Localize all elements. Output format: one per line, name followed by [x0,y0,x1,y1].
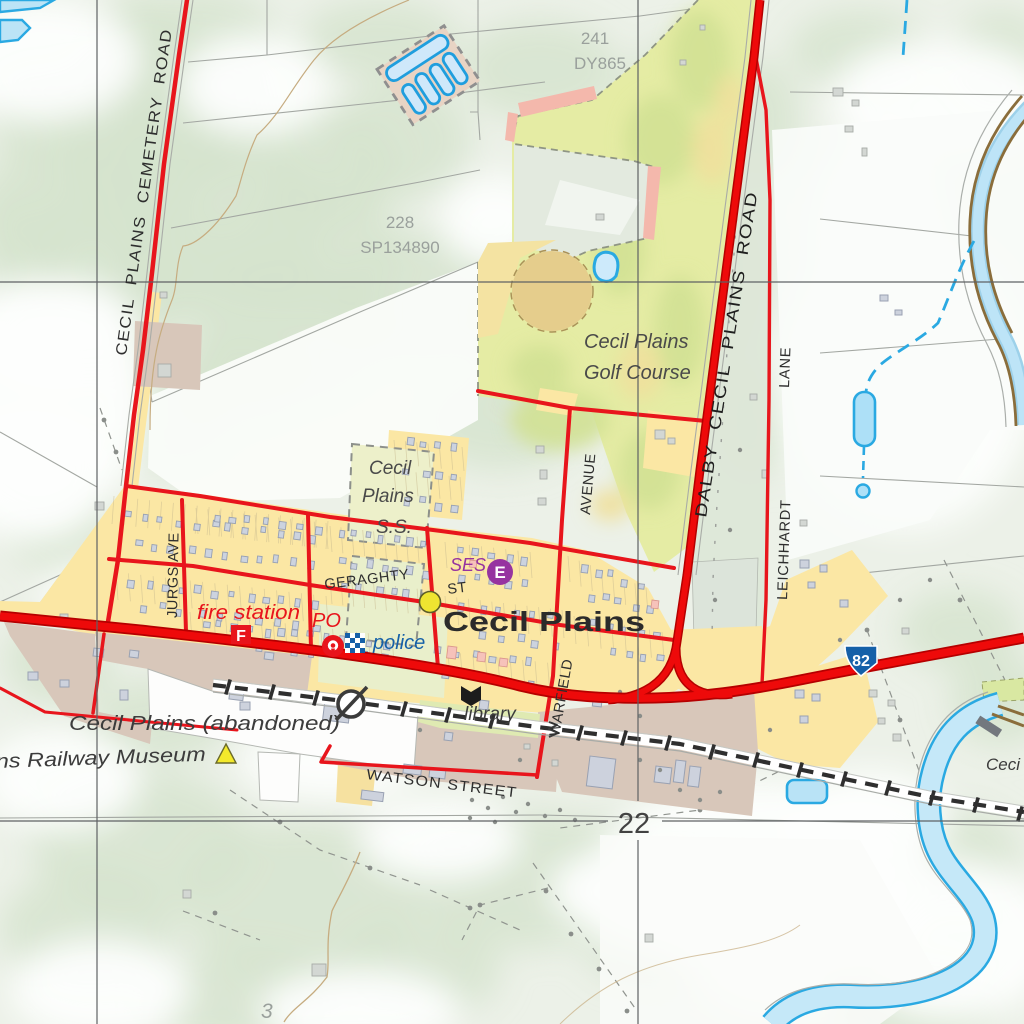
svg-text:241: 241 [581,29,609,48]
svg-text:Cecil: Cecil [369,458,412,479]
svg-text:Cecil Plains (abandoned): Cecil Plains (abandoned) [69,713,340,735]
svg-text:Plains: Plains [362,486,414,507]
svg-text:E: E [494,563,505,582]
svg-text:228: 228 [386,213,414,232]
svg-text:SP134890: SP134890 [360,238,439,257]
svg-text:police: police [372,632,425,654]
svg-text:PO: PO [312,610,341,632]
svg-text:Golf Course: Golf Course [584,362,691,384]
svg-text:82: 82 [852,653,870,670]
svg-text:Ceci: Ceci [986,755,1021,774]
svg-text:ST: ST [447,580,468,598]
svg-text:DY865: DY865 [574,54,626,73]
svg-text:Cecil Plains: Cecil Plains [584,331,688,353]
svg-text:22: 22 [618,808,650,840]
svg-text:3: 3 [261,1000,273,1023]
svg-text:fire station: fire station [197,602,300,624]
svg-text:JURGS AVE: JURGS AVE [165,532,182,618]
svg-text:library: library [464,704,517,725]
svg-text:SES: SES [450,555,486,575]
svg-text:F: F [236,628,246,645]
svg-text:Cecil Plains: Cecil Plains [443,606,645,637]
svg-text:LANE: LANE [777,347,794,389]
svg-text:S.S.: S.S. [376,517,412,538]
